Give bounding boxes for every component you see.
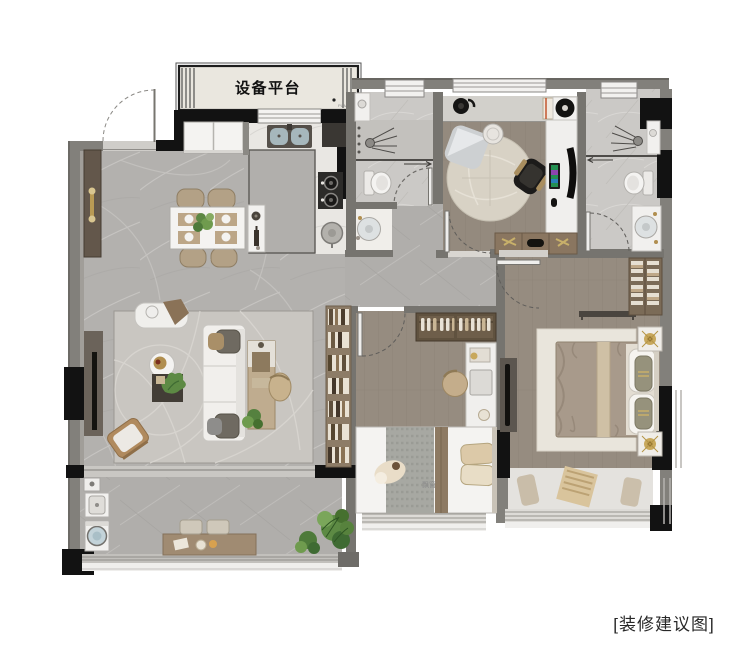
svg-text:设备平台: 设备平台 xyxy=(235,79,301,97)
svg-text:飘窗: 飘窗 xyxy=(422,480,436,489)
svg-text:[装修建议图]: [装修建议图] xyxy=(613,615,714,634)
